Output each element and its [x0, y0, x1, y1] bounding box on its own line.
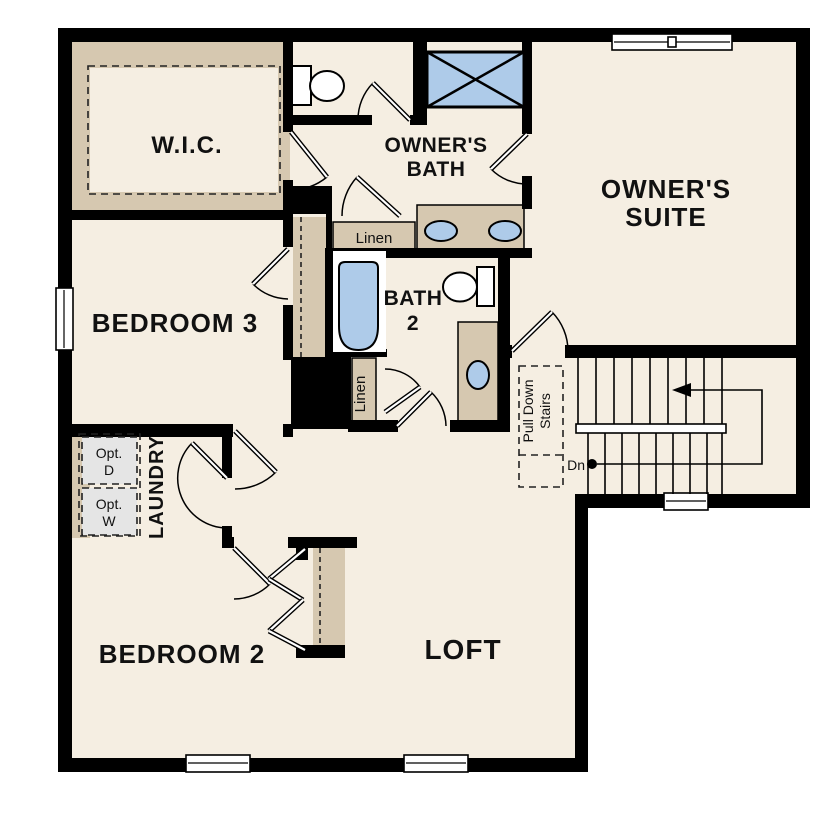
wall-segment	[796, 28, 810, 508]
loft-label: LOFT	[424, 634, 501, 665]
wall-segment	[222, 537, 234, 548]
wall-segment	[325, 250, 333, 356]
opt-washer-label-2: W	[102, 513, 116, 529]
wall-segment	[58, 210, 293, 220]
wall-segment	[498, 345, 512, 358]
wall-segment	[58, 758, 588, 772]
bedroom3-label: BEDROOM 3	[92, 308, 258, 338]
wall-segment	[283, 424, 293, 437]
wall-segment	[58, 28, 72, 772]
owners-suite-label-2: SUITE	[625, 202, 707, 232]
bathtub	[333, 251, 386, 352]
window-owners-suite	[612, 34, 732, 50]
bath2-label-2: 2	[407, 312, 419, 335]
stair-down-dot	[587, 459, 597, 469]
pull-down-label-1: Pull Down	[520, 379, 536, 442]
wall-segment	[283, 186, 332, 214]
shower	[427, 52, 524, 107]
laundry-label: LAUNDRY	[146, 435, 168, 539]
window-bedroom2	[186, 755, 250, 772]
pull-down-label-2: Stairs	[537, 393, 553, 429]
wall-segment	[498, 248, 510, 432]
window-loft	[404, 755, 468, 772]
wall-segment	[565, 345, 797, 358]
owners-bath-label-1: OWNER'S	[385, 134, 488, 157]
sink-owners-bath-right	[489, 221, 521, 241]
wall-segment	[326, 214, 332, 254]
bedroom2-label: BEDROOM 2	[99, 639, 265, 669]
wall-segment	[348, 420, 398, 432]
opt-dryer-label-1: Opt.	[96, 445, 122, 461]
opt-washer-label-1: Opt.	[96, 496, 122, 512]
wall-segment	[413, 42, 427, 125]
wall-segment	[522, 176, 532, 209]
wall-segment	[291, 357, 351, 429]
bath2-label-1: BATH	[384, 287, 443, 310]
wall-segment	[293, 115, 372, 125]
window-stairwell	[664, 493, 708, 510]
stair-down-label: Dn	[567, 457, 585, 473]
bedroom3-closet	[293, 217, 328, 358]
linen-upper-label: Linen	[356, 230, 393, 247]
floor-plan: W.I.C. OWNER'S BATH OWNER'S SUITE BEDROO…	[0, 0, 840, 822]
wall-segment	[410, 115, 427, 125]
wall-segment	[575, 494, 588, 772]
linen-lower-label: Linen	[352, 376, 369, 413]
floor-plan-svg: W.I.C. OWNER'S BATH OWNER'S SUITE BEDROO…	[0, 0, 840, 822]
wic-shelving	[65, 35, 290, 217]
bedroom2-closet	[313, 548, 345, 648]
stair-landing	[576, 424, 726, 433]
owners-suite-label-1: OWNER'S	[601, 174, 731, 204]
window-bedroom3	[56, 288, 73, 350]
owners-bath-label-2: BATH	[407, 158, 466, 181]
opt-dryer-label-2: D	[104, 462, 114, 478]
wall-segment	[283, 305, 293, 360]
sink-owners-bath-left	[425, 221, 457, 241]
sink-bath2	[467, 361, 489, 389]
wall-segment	[283, 220, 293, 247]
wic-label: W.I.C.	[151, 132, 222, 159]
